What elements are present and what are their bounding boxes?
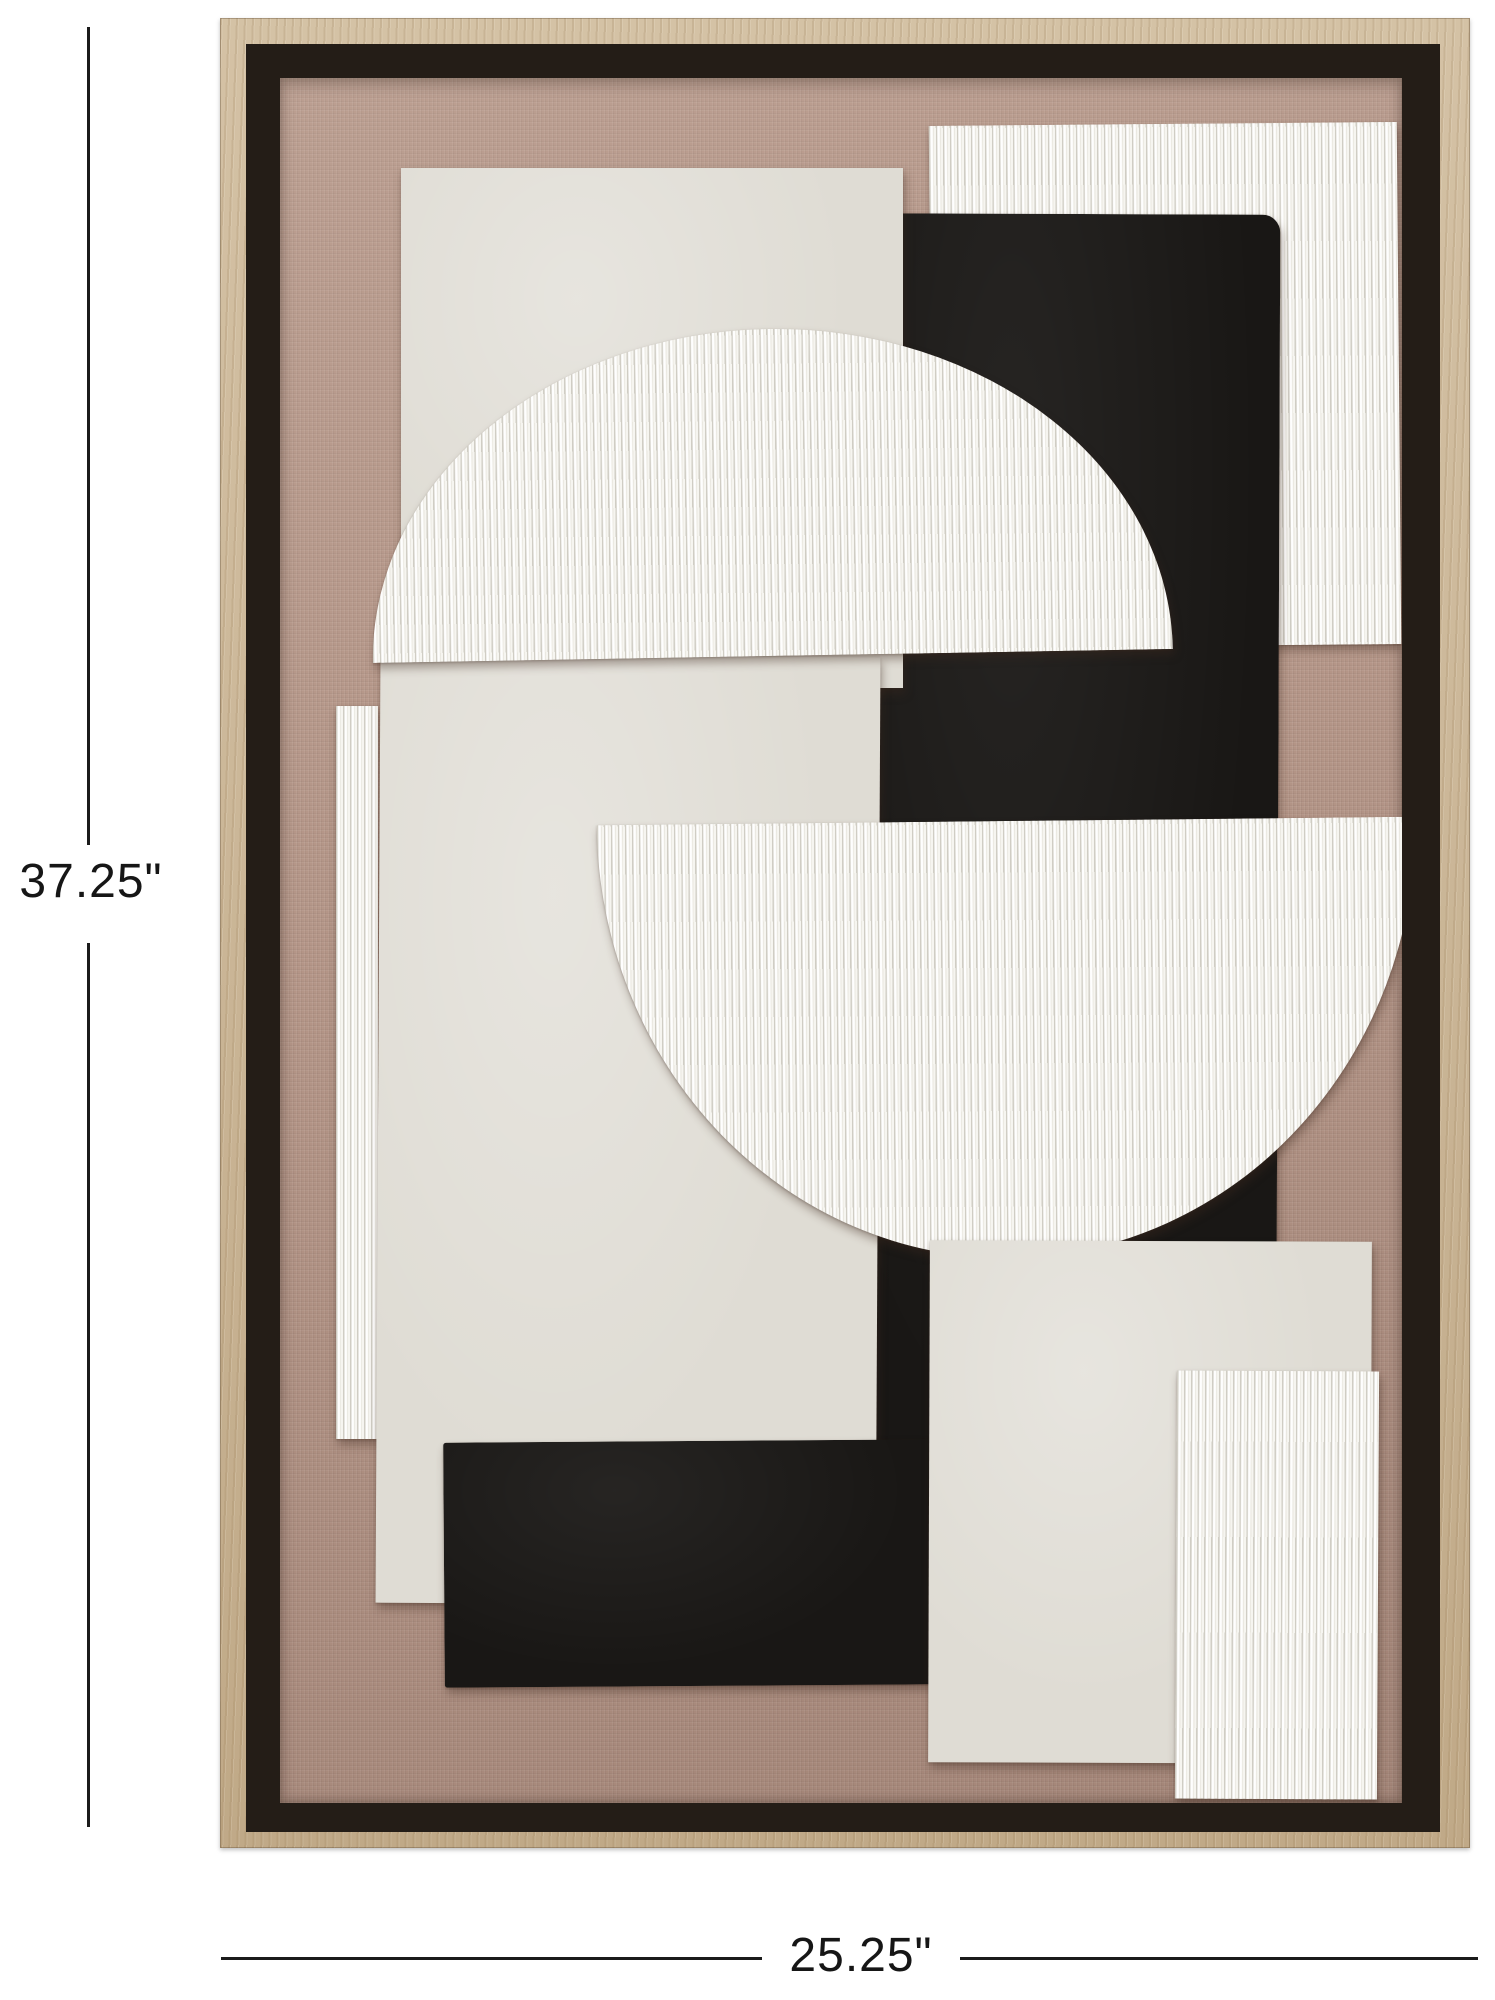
frame-inner-shadow	[246, 44, 1440, 1832]
linen-canvas-background	[280, 78, 1402, 1803]
product-dimension-image: 37.25" 25.25"	[0, 0, 1495, 2000]
height-dimension-line-top	[87, 27, 90, 845]
width-dimension-label: 25.25"	[761, 1932, 961, 1980]
bottom-right-ribbed-rectangle	[1175, 1370, 1379, 1799]
height-dimension-label: 37.25"	[0, 858, 182, 906]
wood-frame	[220, 18, 1470, 1848]
width-dimension-line-left	[221, 1957, 762, 1960]
left-ribbed-strip	[336, 706, 378, 1439]
width-dimension-line-right	[960, 1957, 1478, 1960]
bottom-black-rectangle	[443, 1439, 935, 1687]
height-dimension-line-bottom	[87, 943, 90, 1827]
